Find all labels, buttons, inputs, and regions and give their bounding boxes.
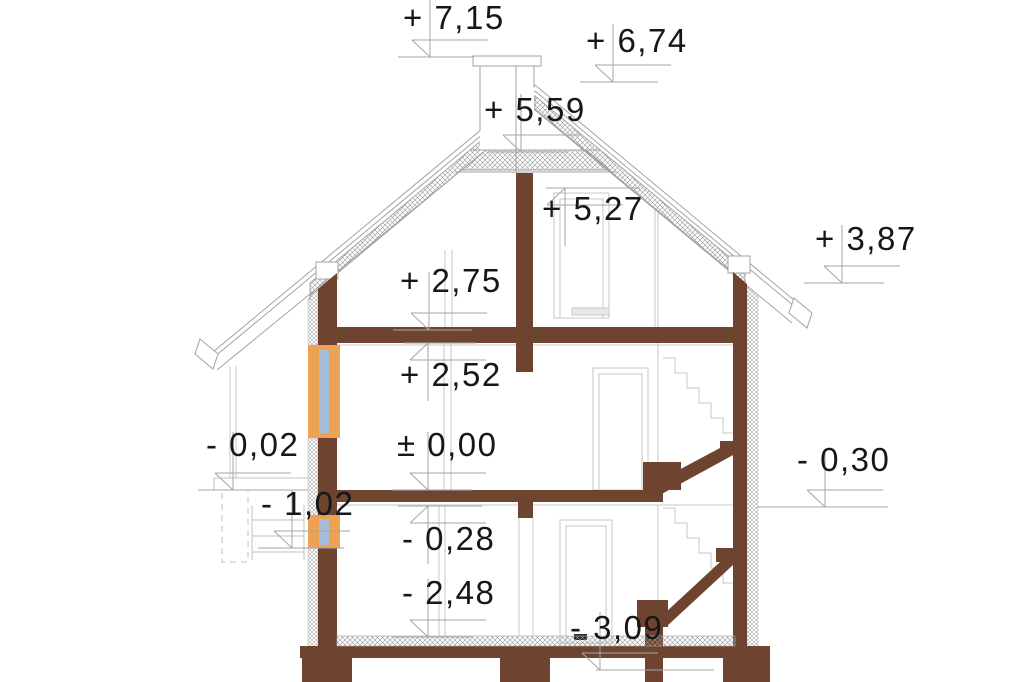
chimney-cap [473,56,541,66]
footing-left [302,658,352,682]
elevation-label-basement-floor: - 2,48 [402,577,495,608]
purlin-right [728,256,750,273]
left-wall-base [318,548,337,647]
footing-right [723,658,770,682]
elevation-label-right-grade: - 0,30 [797,444,890,475]
right-fascia [789,298,812,328]
elevation-label-right-eave: + 3,87 [815,223,917,254]
elevation-label-attic-floor: + 2,75 [400,265,502,296]
elevation-label-attic-ceiling: + 5,27 [542,193,644,224]
elevation-label-collar-ceiling: + 5,59 [484,94,586,125]
elevation-label-left-grade: - 0,02 [206,429,299,460]
ground-floor-window [308,345,340,438]
footing-middle [500,658,550,682]
elevation-label-ground-ceiling: + 2,52 [400,359,502,390]
ground-door [593,368,648,490]
structure [300,173,770,682]
basement-floor-slab [300,646,770,658]
elevation-label-foundation: - 3,09 [570,612,663,643]
center-wall-stub [518,502,533,518]
left-fascia [195,339,218,369]
elevation-label-ridge: + 6,74 [586,25,688,56]
elevation-label-ground-floor: ± 0,00 [397,429,498,460]
ground-floor-slab [337,490,663,502]
upper-stair-steps [663,358,735,448]
elevation-label-chimney-top: + 7,15 [403,2,505,33]
elevation-label-left-lightwell: - 1,02 [261,488,354,519]
cross-section-drawing: + 7,15+ 6,74+ 5,59+ 5,27+ 3,87+ 2,75+ 2,… [0,0,1024,682]
elevation-label-basement-ceiling: - 0,28 [402,523,495,554]
attic-floor-slab [337,327,747,343]
